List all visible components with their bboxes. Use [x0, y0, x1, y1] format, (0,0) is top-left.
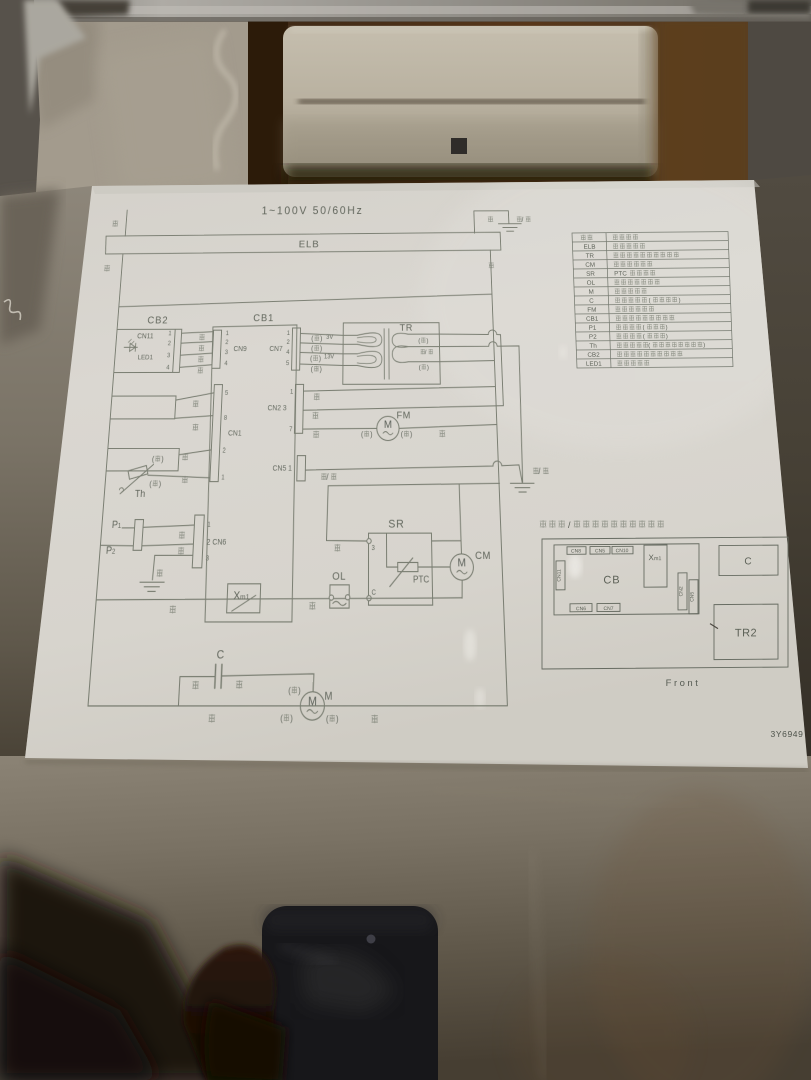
svg-text:FM: FM — [587, 307, 596, 314]
svg-text:P1: P1 — [589, 325, 597, 332]
svg-text:CM: CM — [585, 262, 595, 269]
svg-text:CN10: CN10 — [616, 548, 629, 554]
svg-text:3Y6949: 3Y6949 — [771, 729, 804, 739]
svg-text:CN8: CN8 — [571, 548, 581, 554]
svg-text:TR2: TR2 — [735, 627, 757, 639]
svg-text:Xm1: Xm1 — [649, 553, 662, 562]
svg-text:(: ( — [642, 325, 644, 331]
svg-text:): ) — [703, 343, 705, 349]
svg-text:C: C — [744, 556, 751, 567]
svg-text:CB: CB — [603, 574, 620, 586]
svg-text:SR: SR — [586, 271, 595, 278]
svg-text:P2: P2 — [589, 334, 597, 341]
svg-text:CN5: CN5 — [690, 592, 696, 602]
svg-text:CN11: CN11 — [557, 569, 563, 582]
svg-text:Th: Th — [589, 343, 597, 350]
svg-text:(: ( — [643, 334, 645, 340]
svg-text:ELB: ELB — [583, 244, 595, 251]
svg-text:CB2: CB2 — [587, 352, 600, 359]
svg-text:CB1: CB1 — [586, 316, 599, 323]
svg-text:CN2: CN2 — [679, 586, 685, 596]
svg-text:CN6: CN6 — [576, 606, 586, 612]
svg-text:CN7: CN7 — [603, 606, 613, 612]
svg-text:Front: Front — [666, 678, 701, 689]
svg-text:C: C — [589, 298, 594, 305]
svg-text:(: ( — [648, 343, 650, 349]
svg-text:(: ( — [648, 298, 650, 304]
svg-text:TR: TR — [586, 253, 595, 260]
svg-text:): ) — [665, 325, 667, 331]
svg-text:): ) — [678, 298, 680, 304]
svg-text:PTC: PTC — [614, 270, 627, 277]
svg-text:): ) — [666, 334, 668, 340]
svg-text:/: / — [568, 520, 571, 530]
svg-text:OL: OL — [587, 280, 596, 287]
svg-text:M: M — [588, 289, 594, 296]
svg-text:CN5: CN5 — [595, 548, 605, 554]
svg-text:LED1: LED1 — [586, 361, 603, 368]
